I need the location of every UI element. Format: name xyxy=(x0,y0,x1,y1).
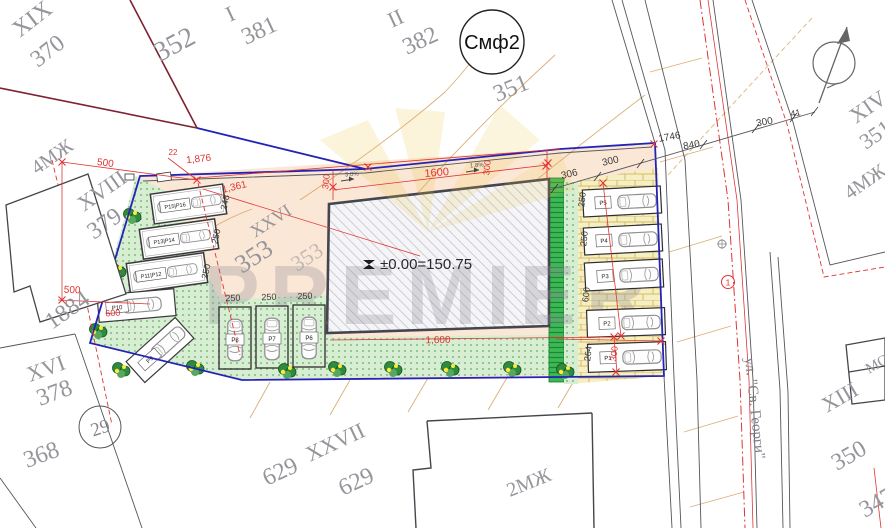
dimension-label-red: 22 xyxy=(169,148,178,157)
dimension-label: 250 xyxy=(297,291,312,302)
street-axis-point-label: 1 xyxy=(726,278,731,288)
dimension-label-red: 1,600 xyxy=(425,335,451,346)
parking-stall-p8: P8 xyxy=(219,307,251,369)
stall-label: P3 xyxy=(601,274,609,280)
car-icon xyxy=(618,194,657,209)
dimension-label-red: 500 xyxy=(96,157,114,170)
stall-label: P6 xyxy=(305,336,313,342)
parking-stall-p3: P3 xyxy=(584,259,663,291)
building-elevation: ±0.00=150.75 xyxy=(363,256,472,273)
parking-stall-p4: P4 xyxy=(583,224,662,255)
dimension-label: 600 xyxy=(580,287,592,303)
car-icon xyxy=(620,267,659,282)
dimension-label: 264 xyxy=(582,346,594,362)
stall-label: P4 xyxy=(600,239,608,245)
dimension-label: 41 xyxy=(790,107,802,119)
car-icon xyxy=(623,350,662,365)
car-icon xyxy=(619,232,658,247)
dimension-label-red: 300 xyxy=(608,346,620,362)
dimension-label: 250 xyxy=(225,293,240,304)
parking-stall-p5: P5 xyxy=(582,186,661,217)
dimension-label-red: 1600 xyxy=(424,166,449,180)
dimension-label-red: 600 xyxy=(105,307,121,318)
slope-label: 3.0% xyxy=(345,171,360,178)
site-plan-page: PREMIER P15|P16P13|P14P11|P12P10P9P8P7P6… xyxy=(0,0,885,528)
stall-label: P7 xyxy=(268,337,276,343)
stall-label: P5 xyxy=(599,201,607,207)
stall-label: P2 xyxy=(603,321,611,327)
site-plan-canvas: PREMIER P15|P16P13|P14P11|P12P10P9P8P7P6… xyxy=(0,0,885,528)
parking-stall-p1: P1 xyxy=(588,342,667,373)
parking-stall-p6: P6 xyxy=(293,305,325,367)
dimension-label: 250 xyxy=(576,192,588,208)
car-icon xyxy=(622,315,661,330)
zone-circle-label: Смф2 xyxy=(464,32,520,54)
building-elevation-label: ±0.00=150.75 xyxy=(380,256,472,273)
dimension-label-red: 500 xyxy=(64,285,82,297)
dimension-label: 250 xyxy=(578,231,590,247)
stall-label: P8 xyxy=(231,338,239,344)
parking-stall-p2: P2 xyxy=(587,308,666,338)
dimension-label-red: 300 xyxy=(320,174,332,190)
parking-stall-p7: P7 xyxy=(256,306,288,368)
slope-label: 1.8% xyxy=(470,162,485,169)
zone-circle: Смф2 xyxy=(460,10,524,74)
dimension-label: 250 xyxy=(261,292,276,303)
